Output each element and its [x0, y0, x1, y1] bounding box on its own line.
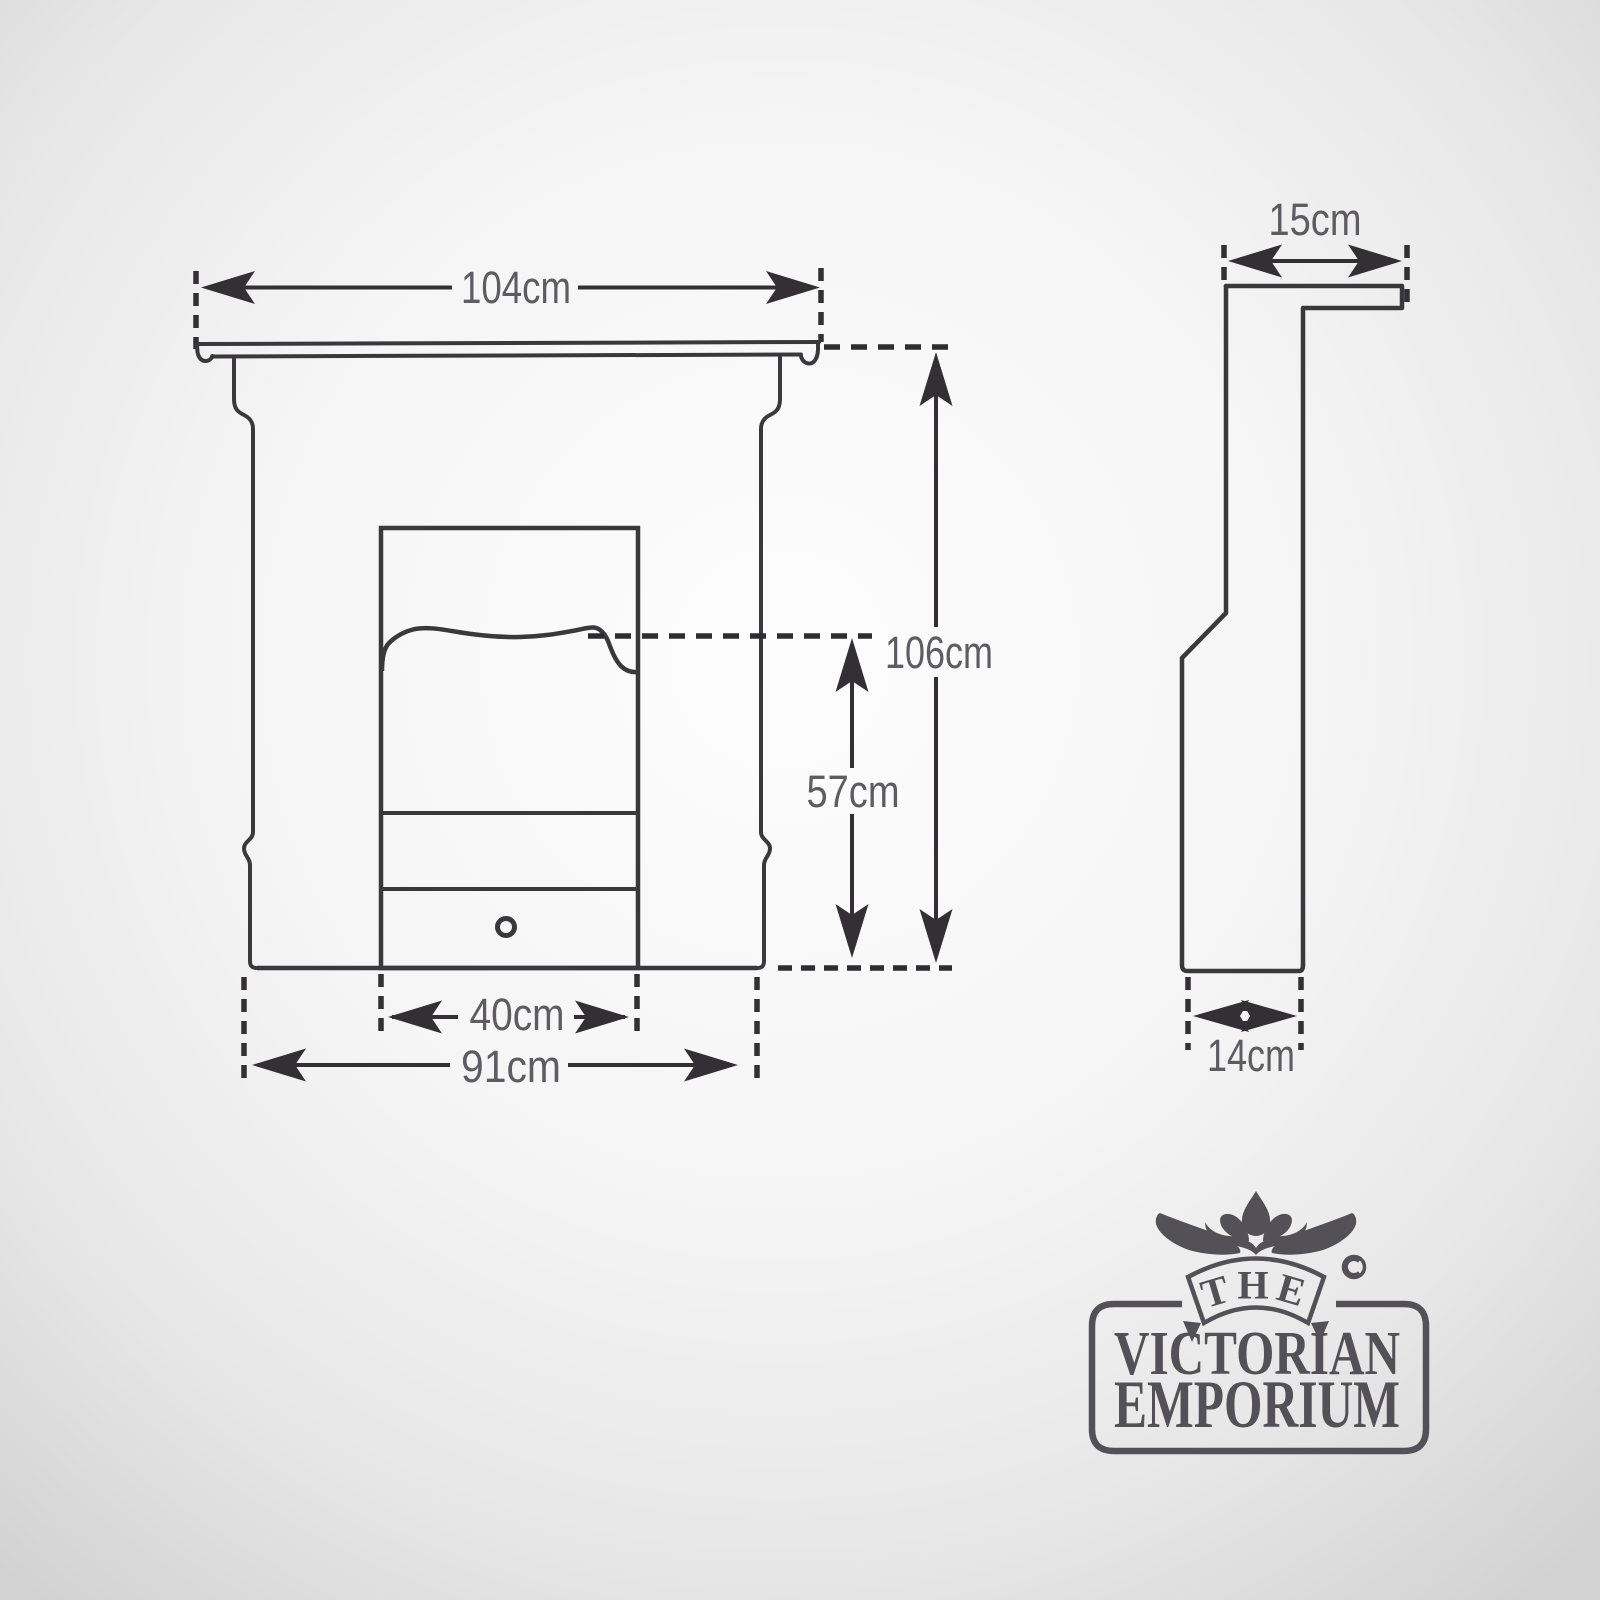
svg-text:14cm: 14cm: [1207, 1030, 1295, 1081]
svg-text:15cm: 15cm: [1269, 194, 1362, 245]
svg-text:104cm: 104cm: [461, 262, 571, 313]
svg-text:91cm: 91cm: [461, 1041, 561, 1092]
svg-text:EMPORIUM: EMPORIUM: [1114, 1366, 1400, 1442]
svg-text:40cm: 40cm: [470, 989, 565, 1040]
svg-text:57cm: 57cm: [807, 766, 900, 817]
svg-text:106cm: 106cm: [885, 627, 993, 678]
